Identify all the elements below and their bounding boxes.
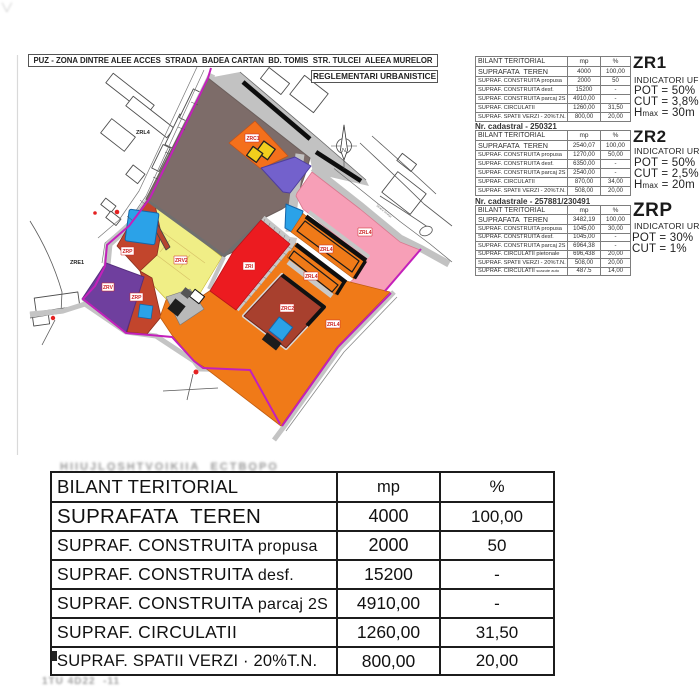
svg-text:ZRP: ZRP bbox=[132, 295, 143, 301]
svg-text:N: N bbox=[342, 148, 346, 154]
svg-text:ZRL4: ZRL4 bbox=[327, 322, 340, 328]
svg-text:ZRV2: ZRV2 bbox=[175, 258, 188, 264]
svg-text:ZRL4: ZRL4 bbox=[359, 230, 372, 236]
svg-text:ZRV: ZRV bbox=[103, 285, 114, 291]
svg-text:ZRC1: ZRC1 bbox=[247, 136, 260, 142]
svg-text:ZRE1: ZRE1 bbox=[70, 260, 84, 266]
svg-text:ZRL4: ZRL4 bbox=[305, 274, 318, 280]
svg-text:ZRL4: ZRL4 bbox=[320, 247, 333, 253]
svg-text:ZRP: ZRP bbox=[123, 249, 134, 255]
svg-text:ZRC2: ZRC2 bbox=[281, 306, 294, 312]
svg-text:ZRL4: ZRL4 bbox=[136, 130, 151, 136]
svg-text:ZRI: ZRI bbox=[245, 264, 254, 270]
